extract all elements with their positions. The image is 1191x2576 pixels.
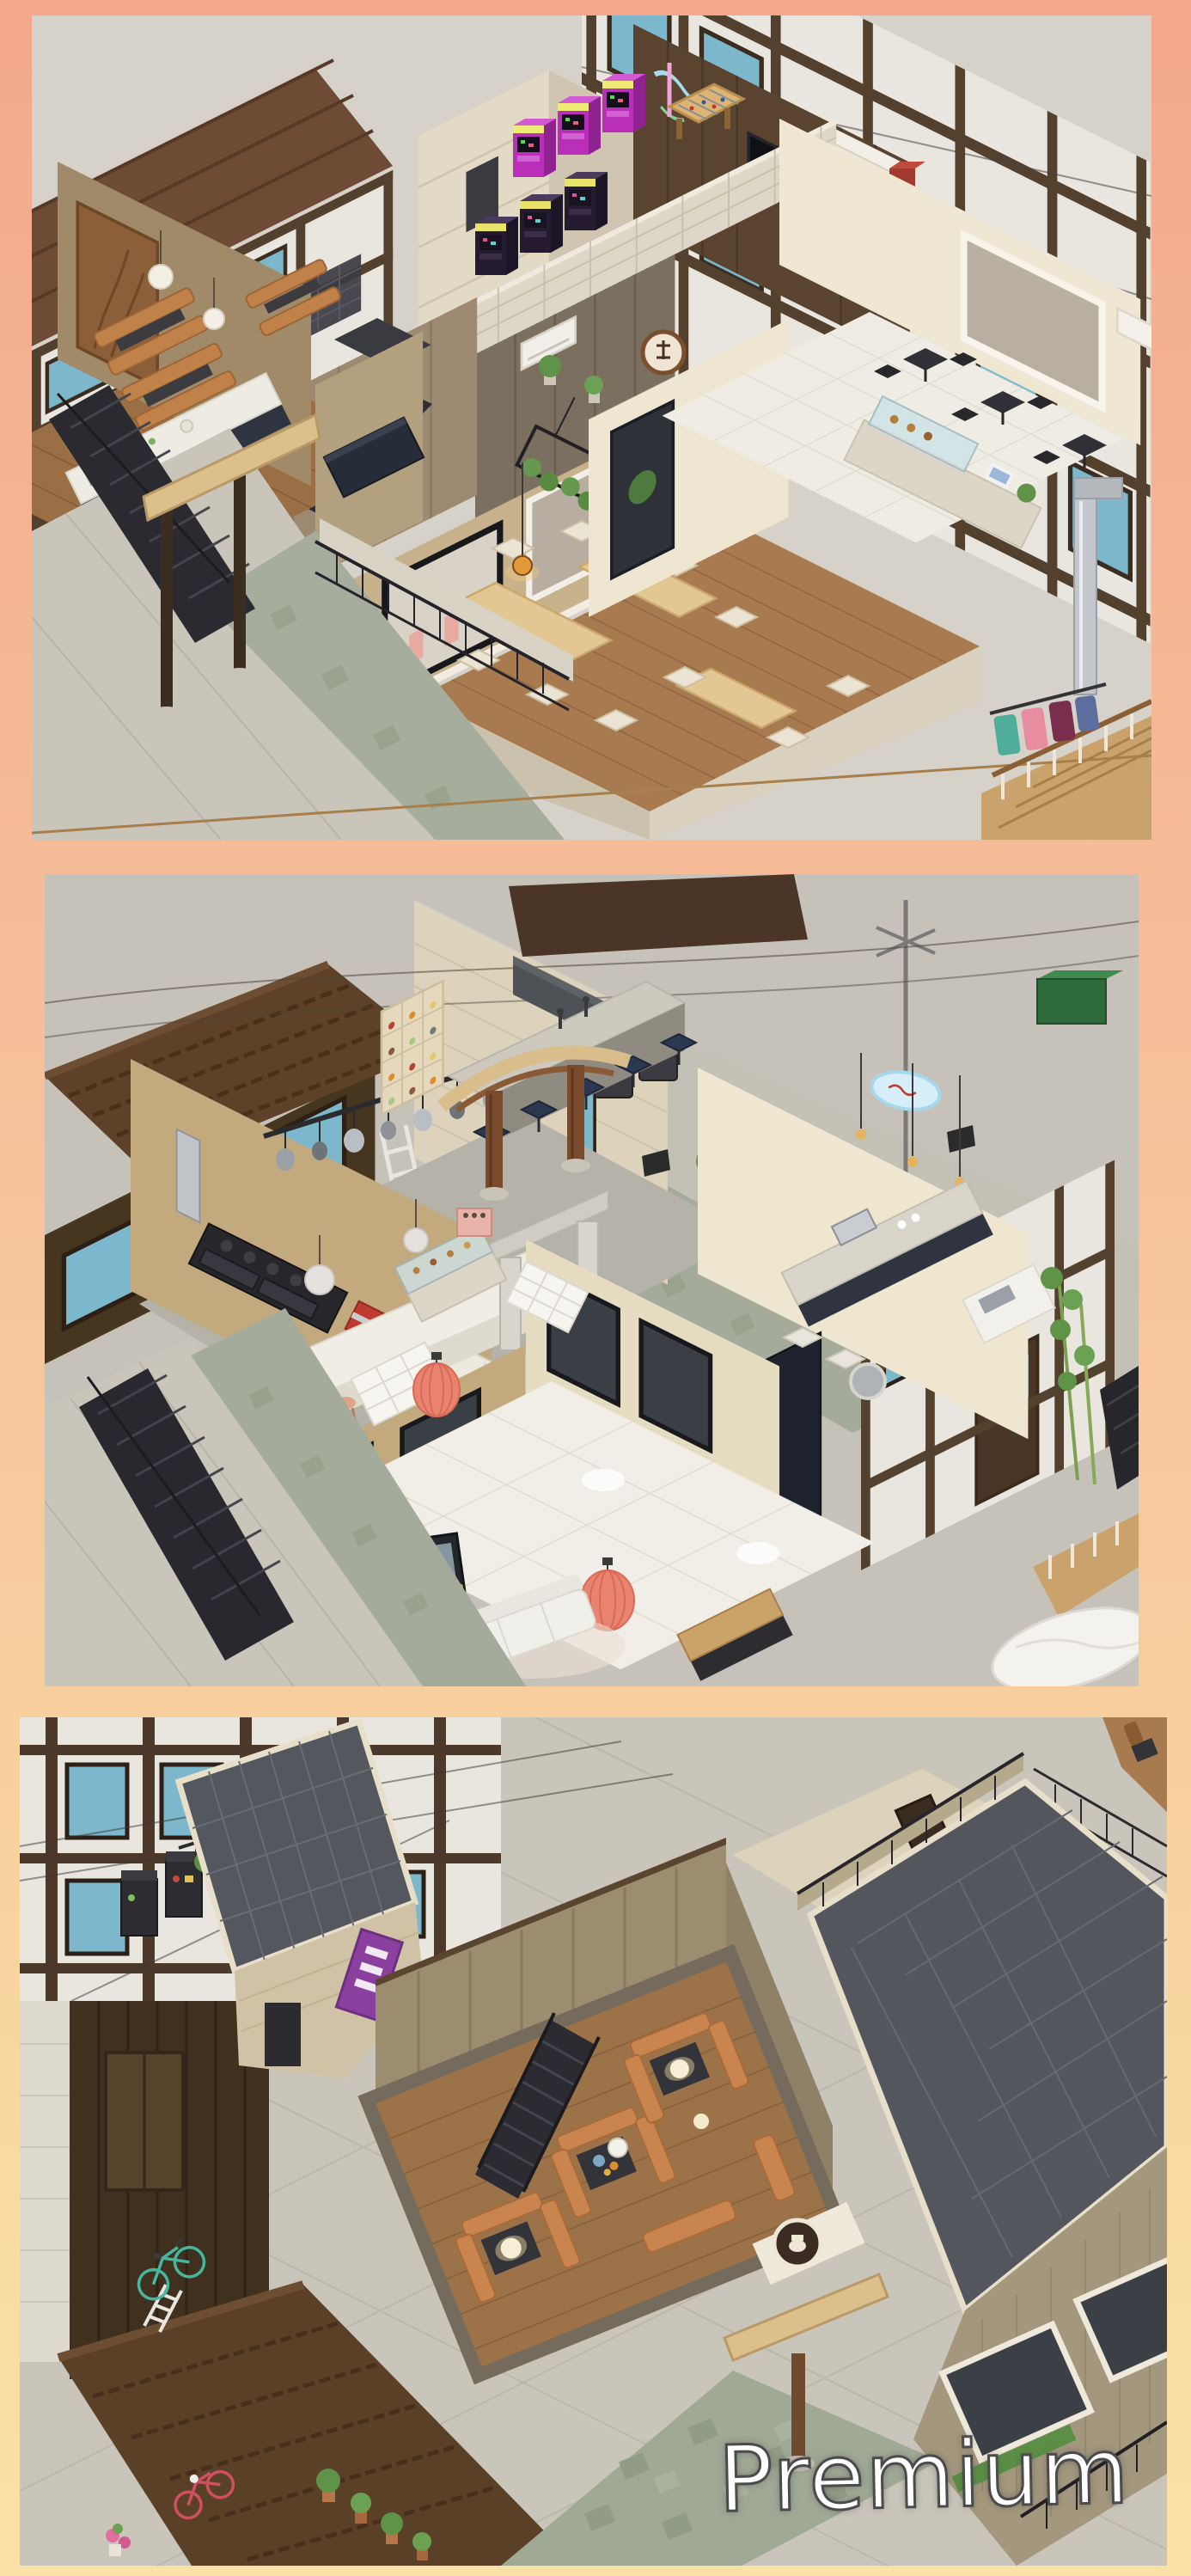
screenshot-panel-top <box>32 15 1151 840</box>
round-kanji-sign <box>643 332 684 373</box>
collage-background: { "page": { "type": "game-screenshot-col… <box>0 0 1191 2576</box>
small-door <box>265 2003 301 2066</box>
water-heater <box>177 1129 200 1222</box>
bottle-crate <box>457 1208 492 1236</box>
premium-watermark: Premium <box>718 2421 1167 2551</box>
wall-lamp-glow <box>693 2114 709 2129</box>
round-table <box>851 1364 885 1398</box>
screenshot-panel-middle <box>45 874 1139 1686</box>
